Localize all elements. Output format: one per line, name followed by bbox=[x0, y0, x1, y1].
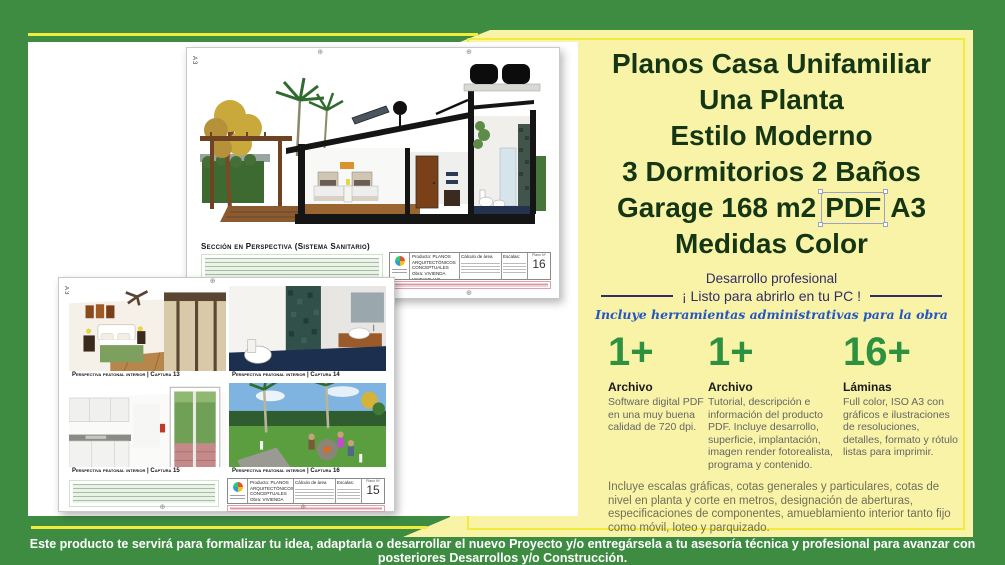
studio-logo-icon bbox=[390, 253, 410, 279]
feature-archivo-1: 1+ Archivo Software digital PDF en una m… bbox=[608, 330, 708, 471]
title-line-6: Medidas Color bbox=[578, 226, 965, 262]
selection-handle[interactable] bbox=[818, 222, 823, 227]
titleblock-producto: Producto: PLANOS ARQUITECTÓNICOS CONCEPT… bbox=[250, 480, 291, 497]
sheet-format-label: A3 bbox=[191, 56, 197, 65]
feature-heading: Archivo bbox=[708, 380, 843, 394]
sheet16-caption: Sección en Perspectiva (Sistema Sanitari… bbox=[201, 242, 370, 251]
titleblock-obra: Obra: VIVIENDA UNIFAMILIAR bbox=[250, 497, 291, 503]
bottom-accent-line bbox=[31, 526, 427, 529]
product-title: Planos Casa Unifamiliar Una Planta Estil… bbox=[578, 46, 965, 262]
sheet16-warning-strip bbox=[389, 281, 551, 289]
feature-text: Software digital PDF en una muy buena ca… bbox=[608, 396, 708, 434]
render-caption: Perspectiva peatonal interior | Captura … bbox=[229, 371, 386, 380]
feature-text: Full color, ISO A3 con gráficos e ilustr… bbox=[843, 396, 961, 459]
pdf-selection-box[interactable]: PDF bbox=[821, 192, 885, 224]
product-info-panel: Planos Casa Unifamiliar Una Planta Estil… bbox=[578, 38, 965, 516]
titleblock-project-info: Producto: PLANOS ARQUITECTÓNICOS CONCEPT… bbox=[248, 479, 294, 503]
titleblock-scale-label: Escalas: bbox=[337, 480, 360, 486]
bathroom-render-illustration bbox=[229, 286, 386, 380]
render-caption: Perspectiva peatonal interior | Captura … bbox=[229, 467, 386, 476]
sheet15-number: 15 bbox=[366, 483, 379, 497]
titleblock-area-column: Cálculo de área bbox=[460, 253, 502, 279]
footer-description: Este producto te servirá para formalizar… bbox=[0, 537, 1005, 565]
titleblock-scale-column: Escalas: bbox=[336, 479, 362, 503]
selection-handle[interactable] bbox=[883, 222, 888, 227]
sheet-number-box: Plano Nº 16 bbox=[528, 253, 550, 279]
registration-mark-icon: ⊕ bbox=[466, 290, 472, 297]
feature-count: 16+ bbox=[843, 330, 961, 374]
sheet-number-box: Plano Nº 15 bbox=[362, 479, 384, 503]
sheet16-titleblock: Producto: PLANOS ARQUITECTÓNICOS CONCEPT… bbox=[389, 252, 551, 280]
registration-mark-icon: ⊕ bbox=[466, 49, 472, 56]
feature-text: Tutorial, descripción e información del … bbox=[708, 396, 843, 471]
title-line-3: Estilo Moderno bbox=[578, 118, 965, 154]
selection-handle[interactable] bbox=[818, 189, 823, 194]
section-render-svg bbox=[199, 56, 547, 238]
titleblock-project-info: Producto: PLANOS ARQUITECTÓNICOS CONCEPT… bbox=[410, 253, 460, 279]
tagline-professional: Desarrollo profesional bbox=[578, 271, 965, 286]
feature-count: 1+ bbox=[608, 330, 708, 374]
section-render-illustration bbox=[199, 56, 547, 238]
registration-mark-icon: ⊕ bbox=[317, 49, 323, 56]
sheet15-notes bbox=[69, 480, 219, 507]
registration-mark-icon: ⊕ bbox=[210, 278, 216, 285]
titleblock-area-label: Cálculo de área bbox=[295, 480, 334, 486]
plan-sheet-16: ⊕ ⊕ A3 bbox=[186, 47, 560, 299]
tagline-ready-pc: ¡ Listo para abrirlo en tu PC ! bbox=[578, 288, 965, 304]
included-details-paragraph: Incluye escalas gráficas, cotas generale… bbox=[578, 481, 965, 535]
bedroom-render-illustration bbox=[69, 286, 226, 380]
titleblock-scale-label: Escalas: bbox=[503, 254, 526, 260]
render-caption: Perspectiva peatonal interior | Captura … bbox=[69, 371, 226, 380]
render-kitchen: Perspectiva peatonal interior | Captura … bbox=[69, 383, 226, 477]
render-bathroom: Perspectiva peatonal interior | Captura … bbox=[229, 286, 386, 380]
render-grid: Perspectiva peatonal interior | Captura … bbox=[69, 286, 386, 476]
registration-mark-icon: ⊕ bbox=[300, 504, 306, 511]
feature-count: 1+ bbox=[708, 330, 843, 374]
sheet15-titleblock: Producto: PLANOS ARQUITECTÓNICOS CONCEPT… bbox=[227, 478, 385, 504]
pdf-label: PDF bbox=[825, 192, 881, 223]
title-line-1: Planos Casa Unifamiliar bbox=[578, 46, 965, 82]
tagline-rule-right bbox=[870, 295, 942, 297]
studio-logo-icon bbox=[228, 479, 248, 503]
title-line-5-pre: Garage 168 m2 bbox=[617, 192, 816, 223]
titleblock-scale-column: Escalas: bbox=[502, 253, 528, 279]
render-bedroom: Perspectiva peatonal interior | Captura … bbox=[69, 286, 226, 380]
tagline-rule-left bbox=[601, 295, 673, 297]
titleblock-obra: Obra: VIVIENDA UNIFAMILIAR bbox=[412, 271, 457, 279]
selection-handle[interactable] bbox=[883, 189, 888, 194]
titleblock-area-label: Cálculo de área bbox=[461, 254, 500, 260]
title-line-5-post: A3 bbox=[890, 192, 926, 223]
feature-archivo-2: 1+ Archivo Tutorial, descripción e infor… bbox=[708, 330, 843, 471]
top-accent-line bbox=[28, 33, 478, 36]
titleblock-producto: Producto: PLANOS ARQUITECTÓNICOS CONCEPT… bbox=[412, 254, 457, 271]
feature-heading: Láminas bbox=[843, 380, 961, 394]
feature-heading: Archivo bbox=[608, 380, 708, 394]
plan-sheet-15: ⊕ A3 bbox=[58, 277, 395, 512]
title-line-5: Garage 168 m2PDFA3 bbox=[578, 190, 965, 226]
render-caption: Perspectiva peatonal interior | Captura … bbox=[69, 467, 226, 476]
tagline-admin-tools: Incluye herramientas administrativas par… bbox=[578, 307, 965, 322]
feature-laminas: 16+ Láminas Full color, ISO A3 con gráfi… bbox=[843, 330, 961, 471]
garden-render-illustration bbox=[229, 383, 386, 477]
feature-columns: 1+ Archivo Software digital PDF en una m… bbox=[578, 330, 965, 471]
sheet16-number: 16 bbox=[532, 257, 545, 271]
title-line-4: 3 Dormitorios 2 Baños bbox=[578, 154, 965, 190]
kitchen-render-illustration bbox=[69, 383, 226, 477]
titleblock-area-column: Cálculo de área bbox=[294, 479, 336, 503]
registration-mark-icon: ⊕ bbox=[160, 504, 166, 511]
title-line-2: Una Planta bbox=[578, 82, 965, 118]
render-garden: Perspectiva peatonal interior | Captura … bbox=[229, 383, 386, 477]
tagline-ready-pc-text: ¡ Listo para abrirlo en tu PC ! bbox=[682, 288, 861, 304]
